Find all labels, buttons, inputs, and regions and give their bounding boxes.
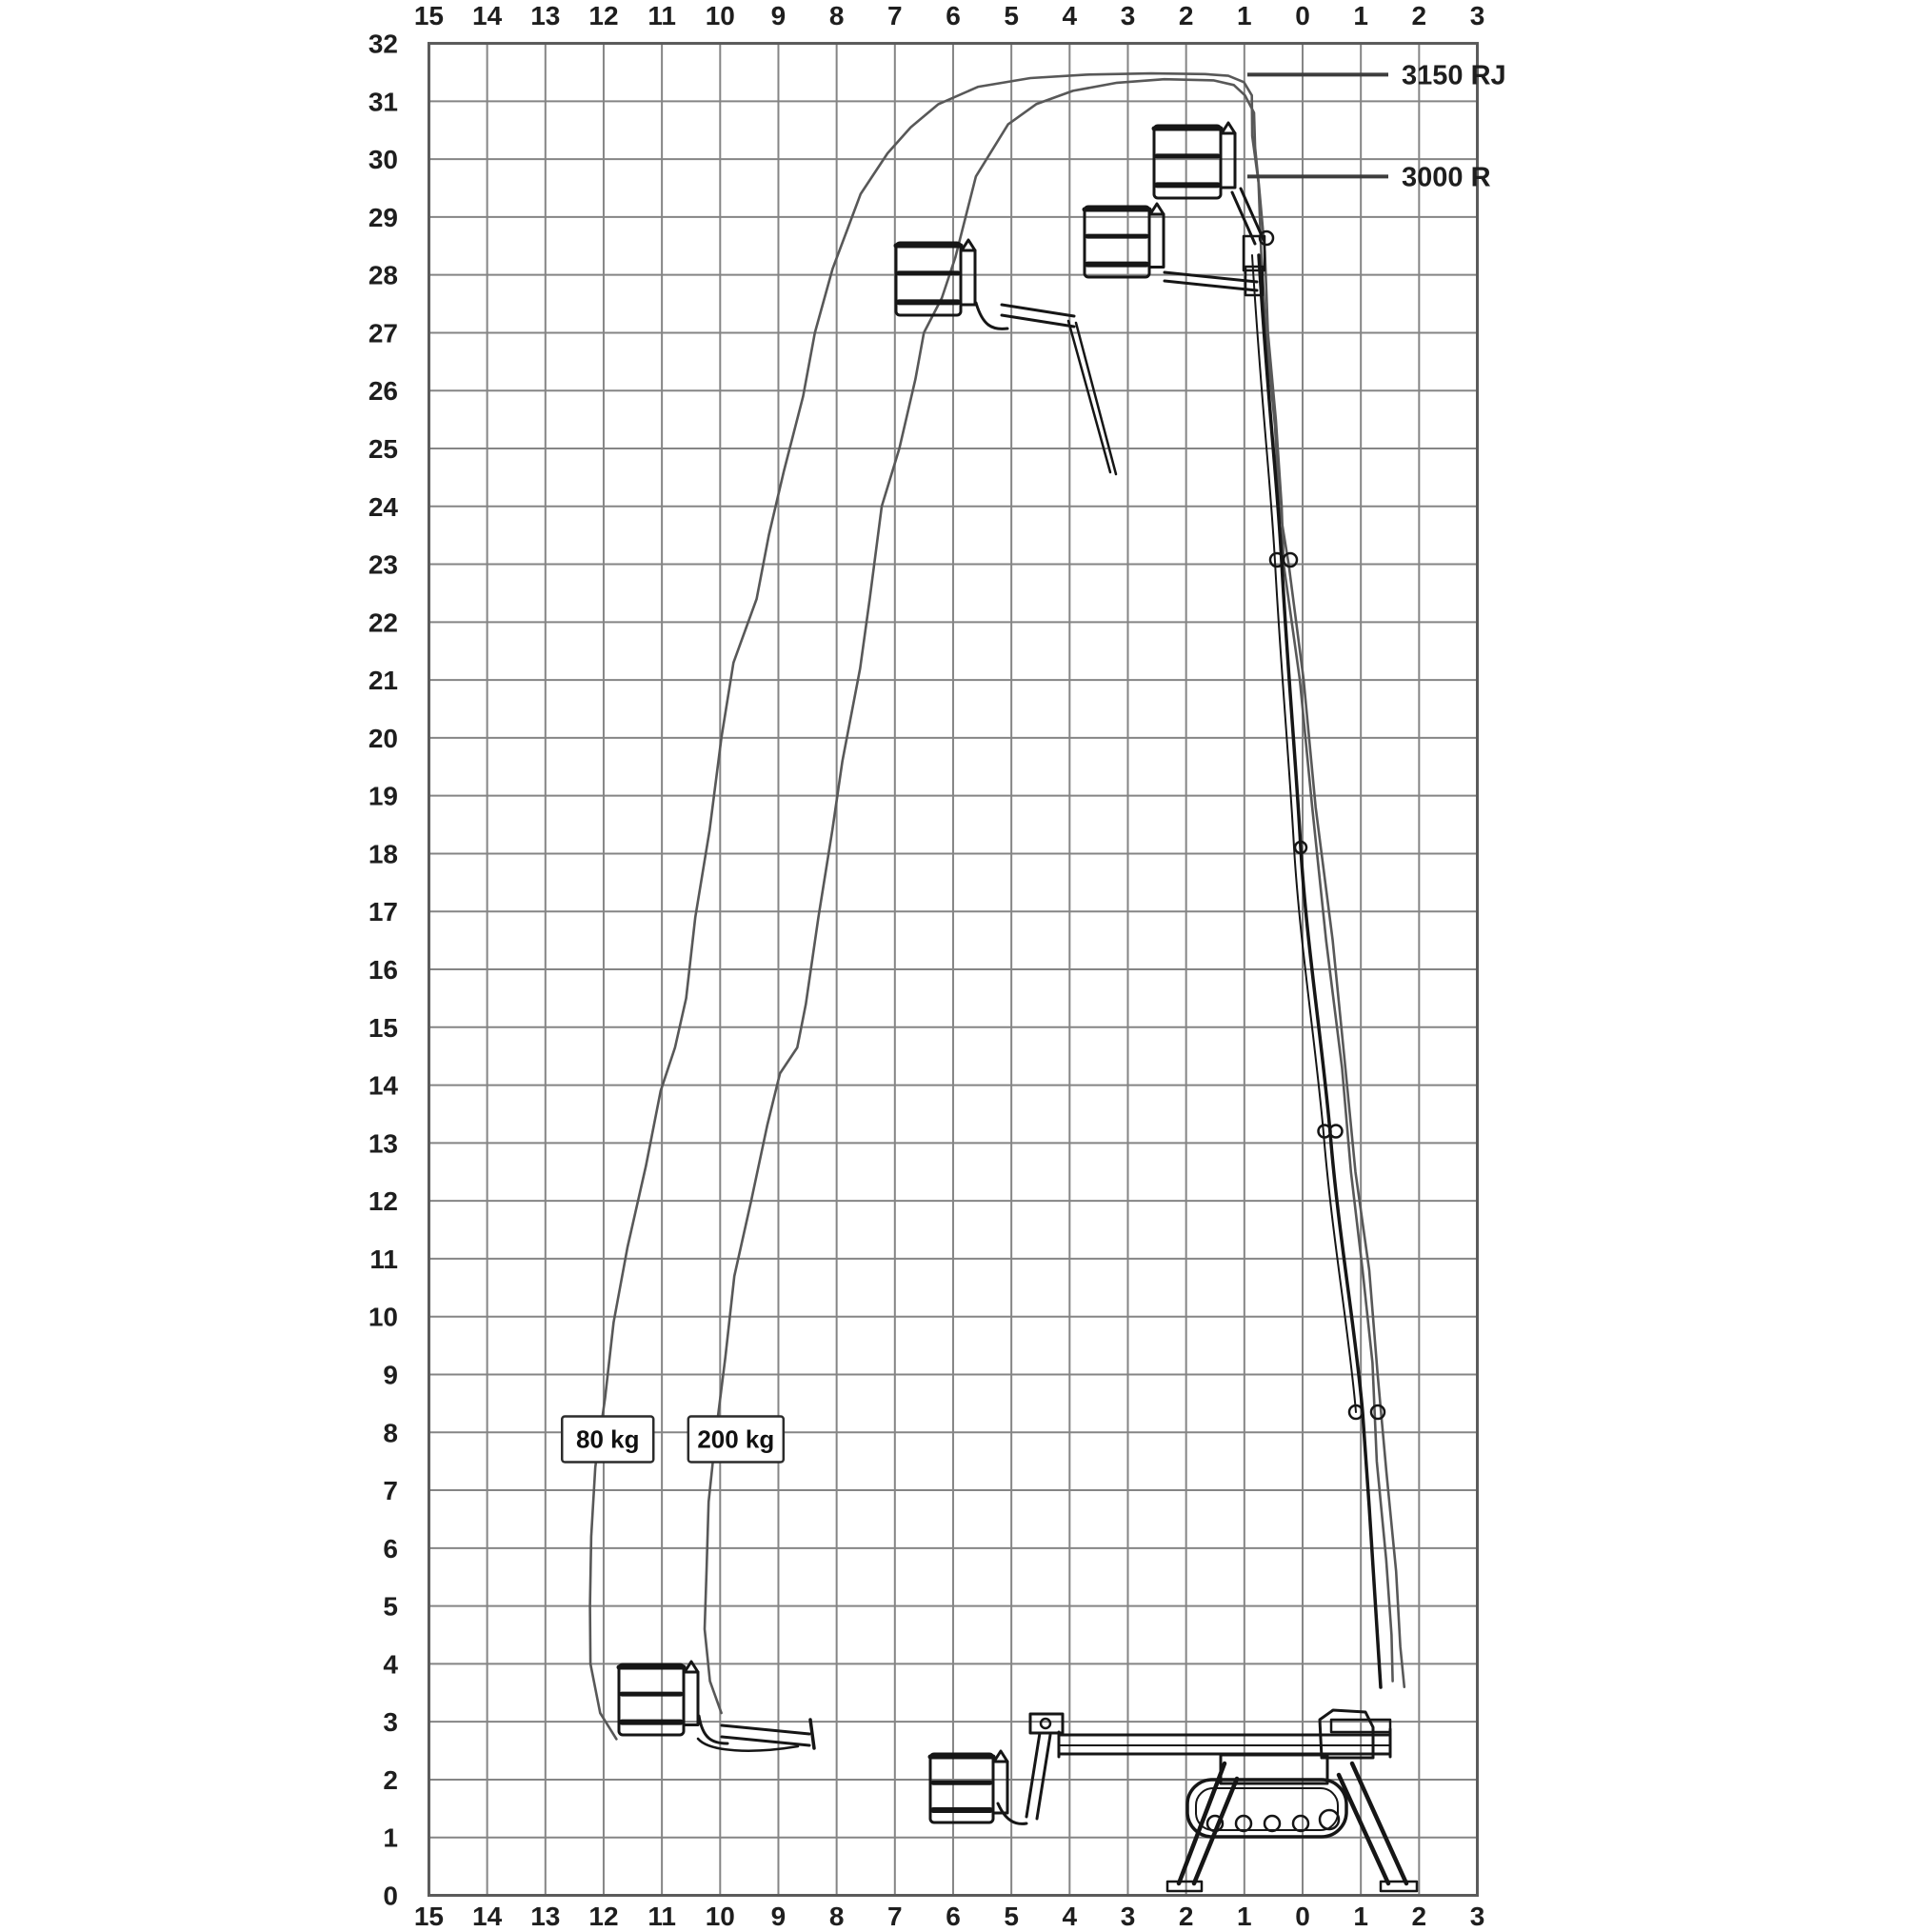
x-tick-top: 8 bbox=[829, 1, 845, 30]
x-tick-bottom: 4 bbox=[1063, 1902, 1078, 1931]
x-tick-bottom: 2 bbox=[1179, 1902, 1194, 1931]
envelope-curve-200kg bbox=[705, 79, 1393, 1713]
basket-sketch-mid bbox=[896, 240, 975, 315]
x-tick-bottom: 1 bbox=[1237, 1902, 1252, 1931]
x-tick-top: 6 bbox=[946, 1, 961, 30]
y-tick-left: 19 bbox=[368, 782, 398, 811]
x-tick-top: 12 bbox=[588, 1, 618, 30]
x-tick-top: 10 bbox=[706, 1, 735, 30]
x-tick-bottom: 2 bbox=[1412, 1902, 1427, 1931]
arm-bottom bbox=[722, 1737, 809, 1745]
x-tick-bottom: 3 bbox=[1470, 1902, 1485, 1931]
x-tick-bottom: 5 bbox=[1004, 1902, 1019, 1931]
x-tick-bottom: 6 bbox=[946, 1902, 961, 1931]
jib-bottom bbox=[1002, 315, 1074, 327]
x-tick-top: 7 bbox=[887, 1, 903, 30]
x-tick-top: 14 bbox=[472, 1, 503, 30]
basket-sketch-max-outreach bbox=[619, 1662, 698, 1735]
road-wheel bbox=[1265, 1816, 1280, 1831]
x-tick-top: 4 bbox=[1063, 1, 1078, 30]
model-label: 3150 RJ bbox=[1402, 60, 1506, 90]
basket-sketch-stowed bbox=[930, 1751, 1007, 1822]
y-tick-left: 27 bbox=[368, 318, 398, 348]
basket-post-tip bbox=[1222, 123, 1235, 133]
y-tick-left: 5 bbox=[383, 1592, 398, 1622]
y-tick-left: 32 bbox=[368, 30, 398, 59]
x-tick-bottom: 9 bbox=[771, 1902, 787, 1931]
x-tick-top: 13 bbox=[530, 1, 560, 30]
x-tick-bottom: 7 bbox=[887, 1902, 903, 1931]
y-tick-left: 20 bbox=[368, 724, 398, 753]
y-tick-left: 25 bbox=[368, 434, 398, 464]
y-tick-left: 3 bbox=[383, 1707, 398, 1737]
x-tick-bottom: 15 bbox=[414, 1902, 444, 1931]
y-tick-left: 9 bbox=[383, 1360, 398, 1389]
y-tick-left: 0 bbox=[383, 1882, 398, 1911]
reach-diagram-svg: 3150 RJ3000 R 80 kg200 kg 15151414131312… bbox=[0, 0, 1932, 1932]
y-tick-left: 29 bbox=[368, 203, 398, 232]
x-tick-top: 11 bbox=[647, 1, 676, 30]
x-tick-bottom: 10 bbox=[706, 1902, 735, 1931]
y-tick-left: 23 bbox=[368, 550, 398, 580]
y-tick-left: 1 bbox=[383, 1823, 398, 1853]
y-tick-left: 14 bbox=[368, 1071, 399, 1101]
x-tick-bottom: 14 bbox=[472, 1902, 503, 1931]
basket-mast-post bbox=[961, 250, 975, 305]
x-tick-top: 2 bbox=[1412, 1, 1427, 30]
basket-post-tip bbox=[962, 240, 975, 250]
basket-sketch-top bbox=[1154, 123, 1235, 198]
y-tick-left: 6 bbox=[383, 1534, 398, 1564]
x-tick-top: 3 bbox=[1470, 1, 1485, 30]
y-tick-left: 21 bbox=[368, 666, 398, 695]
x-tick-bottom: 13 bbox=[530, 1902, 560, 1931]
x-tick-top: 5 bbox=[1004, 1, 1019, 30]
arm-end-fitting bbox=[810, 1720, 814, 1748]
basket-post-tip bbox=[994, 1751, 1007, 1762]
load-label-boxes: 80 kg200 kg bbox=[562, 1417, 784, 1463]
envelope-curves bbox=[590, 73, 1404, 1739]
jib-top bbox=[1002, 305, 1074, 316]
y-tick-left: 4 bbox=[383, 1649, 398, 1679]
x-tick-bottom: 1 bbox=[1353, 1902, 1368, 1931]
y-tick-left: 7 bbox=[383, 1476, 398, 1505]
y-tick-left: 10 bbox=[368, 1303, 398, 1332]
y-tick-left: 16 bbox=[368, 955, 398, 985]
y-tick-left: 30 bbox=[368, 145, 398, 174]
y-tick-left: 11 bbox=[369, 1245, 398, 1274]
basket-mast-post bbox=[1149, 214, 1164, 268]
x-tick-top: 3 bbox=[1121, 1, 1136, 30]
x-tick-top: 9 bbox=[771, 1, 787, 30]
x-tick-bottom: 3 bbox=[1121, 1902, 1136, 1931]
y-tick-left: 2 bbox=[383, 1765, 398, 1795]
y-tick-left: 17 bbox=[368, 897, 398, 926]
load-label: 80 kg bbox=[576, 1425, 640, 1454]
y-tick-left: 15 bbox=[368, 1013, 398, 1043]
y-tick-left: 28 bbox=[368, 261, 398, 290]
model-label: 3000 R bbox=[1402, 162, 1491, 192]
x-tick-bottom: 11 bbox=[647, 1902, 676, 1931]
machine-sketches bbox=[619, 123, 1417, 1891]
jib-top bbox=[1165, 272, 1257, 282]
boom-joint-pin bbox=[1371, 1405, 1384, 1419]
x-tick-top: 1 bbox=[1237, 1, 1252, 30]
y-tick-left: 22 bbox=[368, 607, 398, 637]
x-tick-bottom: 12 bbox=[588, 1902, 618, 1931]
y-tick-left: 24 bbox=[368, 492, 399, 522]
road-wheel bbox=[1293, 1816, 1308, 1831]
x-tick-bottom: 0 bbox=[1295, 1902, 1310, 1931]
basket-post-tip bbox=[1150, 204, 1164, 214]
model-leader-labels: 3150 RJ3000 R bbox=[1247, 60, 1506, 192]
envelope-curve-80kg bbox=[590, 73, 1404, 1739]
jib-bottom bbox=[1165, 281, 1257, 290]
arm-top bbox=[722, 1725, 809, 1734]
elbow-link bbox=[699, 1716, 727, 1743]
y-tick-left: 26 bbox=[368, 376, 398, 406]
x-tick-top: 2 bbox=[1179, 1, 1194, 30]
y-tick-left: 31 bbox=[368, 87, 398, 116]
y-tick-left: 13 bbox=[368, 1128, 398, 1158]
y-tick-left: 12 bbox=[368, 1186, 398, 1216]
x-tick-top: 1 bbox=[1353, 1, 1368, 30]
x-tick-bottom: 8 bbox=[829, 1902, 845, 1931]
tail-edge-a bbox=[1068, 321, 1110, 472]
basket-mast-post bbox=[684, 1672, 698, 1725]
tail-edge-b bbox=[1076, 323, 1116, 474]
reach-diagram-page: 3150 RJ3000 R 80 kg200 kg 15151414131312… bbox=[0, 0, 1932, 1932]
y-tick-left: 8 bbox=[383, 1418, 398, 1447]
basket-mast-post bbox=[1221, 133, 1235, 188]
axis-tick-labels: 1515141413131212111110109988776655443322… bbox=[368, 1, 1484, 1931]
load-label: 200 kg bbox=[697, 1425, 774, 1454]
y-tick-left: 18 bbox=[368, 839, 398, 868]
riser-pivot-fitting bbox=[1030, 1714, 1063, 1733]
grid bbox=[428, 44, 1477, 1896]
riser-pivot-pin bbox=[1041, 1719, 1050, 1728]
basket-sketch-upper bbox=[1085, 204, 1164, 277]
x-tick-top: 15 bbox=[414, 1, 444, 30]
x-tick-top: 0 bbox=[1295, 1, 1310, 30]
